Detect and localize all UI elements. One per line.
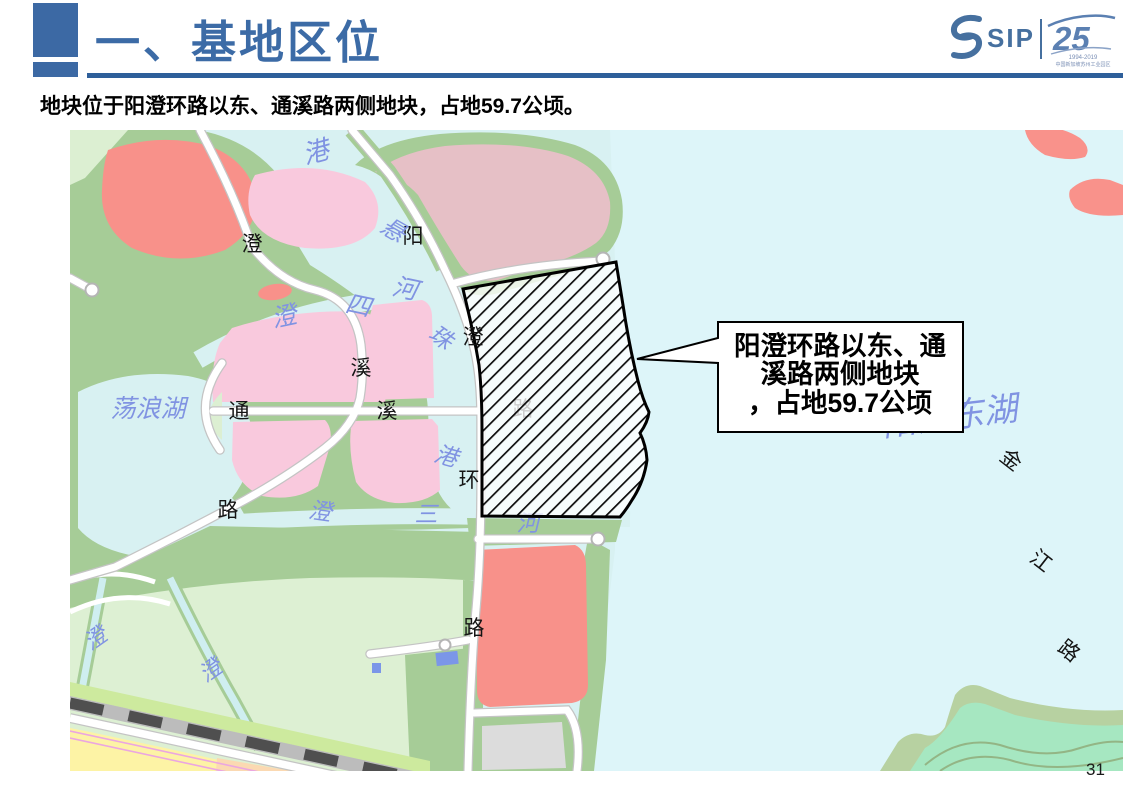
parcel-salmon-south bbox=[476, 545, 588, 707]
station-marker-small bbox=[372, 663, 381, 673]
map-road-label: 澄 bbox=[463, 326, 484, 349]
map-road-label: 溪 bbox=[377, 400, 398, 423]
sip-logo-svg: SIP 25 1994-2019 中国新加坡苏州工业园区 bbox=[945, 10, 1123, 70]
map-road-label: 路 bbox=[464, 617, 485, 640]
location-map-svg: 路 河 澄 阳 澄 溪 通 溪 环 路 路 金 江 路 港 悬 澄 四 河 珠 … bbox=[70, 130, 1123, 771]
callout-text-line-3: ，占地59.7公顷 bbox=[748, 388, 933, 418]
map-water-label: 三 bbox=[415, 501, 440, 527]
callout-text-line-2: 溪路两侧地块 bbox=[761, 359, 920, 389]
sip-wordmark: SIP bbox=[987, 23, 1035, 53]
parcel-gray bbox=[482, 722, 566, 770]
callout-text-line-1: 阳澄环路以东、通 bbox=[734, 331, 946, 361]
map-road-label: 路 bbox=[218, 499, 239, 522]
title-accent-square bbox=[33, 3, 78, 57]
anniversary-caption: 中国新加坡苏州工业园区 bbox=[1055, 61, 1110, 68]
sip-anniversary-logo: SIP 25 1994-2019 中国新加坡苏州工业园区 bbox=[945, 10, 1123, 70]
page-title: 一、基地区位 bbox=[95, 6, 383, 71]
anniversary-years: 1994-2019 bbox=[1069, 55, 1098, 61]
page-number: 31 bbox=[1086, 760, 1105, 780]
title-underline bbox=[87, 73, 1123, 78]
map-road-label: 澄 bbox=[242, 233, 263, 256]
location-map: 路 河 澄 阳 澄 溪 通 溪 环 路 路 金 江 路 港 悬 澄 四 河 珠 … bbox=[70, 130, 1123, 771]
sip-swoosh-icon bbox=[954, 18, 979, 56]
slide-subtitle: 地块位于阳澄环路以东、通溪路两侧地块，占地59.7公顷。 bbox=[40, 90, 585, 120]
site-boundary-hatch bbox=[463, 262, 649, 517]
station-marker-large bbox=[435, 651, 458, 666]
east-lake bbox=[588, 130, 1123, 771]
title-accent-bar bbox=[33, 62, 78, 77]
presentation-slide: 一、基地区位 地块位于阳澄环路以东、通溪路两侧地块，占地59.7公顷。 SIP … bbox=[0, 0, 1123, 794]
anniversary-25-logo: 25 1994-2019 中国新加坡苏州工业园区 bbox=[1048, 16, 1115, 68]
map-lake-label-danglang: 荡浪湖 bbox=[110, 395, 189, 423]
map-road-label: 通 bbox=[229, 400, 250, 423]
map-road-label: 环 bbox=[459, 469, 480, 492]
map-road-label: 溪 bbox=[351, 357, 372, 380]
